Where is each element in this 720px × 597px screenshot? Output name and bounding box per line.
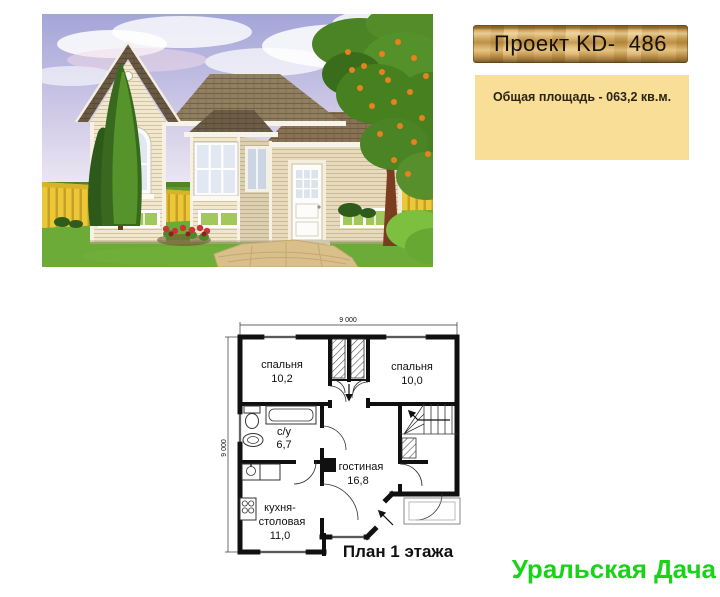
stairs <box>400 404 457 434</box>
house-photo <box>42 14 433 267</box>
closets <box>332 339 416 458</box>
dim-top-label: 9 000 <box>339 317 357 324</box>
kitchen-label-line1: кухня- <box>264 502 296 514</box>
house-illustration <box>42 14 433 267</box>
flower-bed <box>157 225 211 246</box>
kitchen-area: 11,0 <box>270 530 291 542</box>
bedroom1-area: 10,2 <box>271 373 292 385</box>
floor-plan-drawing: 9 000 9 000 <box>220 314 470 566</box>
project-header-plank: Проект KD- 486 <box>473 25 688 63</box>
livingroom-area: 16,8 <box>347 475 368 487</box>
plan-caption: План 1 этажа <box>343 542 454 561</box>
dim-left-label: 9 000 <box>221 439 228 457</box>
bedroom2-label: спальня <box>391 361 433 373</box>
bathroom-area: 6,7 <box>276 439 291 451</box>
bathroom-label: с/у <box>277 426 292 438</box>
brand-watermark: Уральская Дача <box>494 554 716 585</box>
wall-block <box>322 458 336 472</box>
project-title: Проект KD- 486 <box>473 25 688 63</box>
porch <box>404 498 460 524</box>
stairs-arrow <box>409 411 450 420</box>
livingroom-label: гостиная <box>339 461 384 473</box>
total-area-label: Общая площадь - 063,2 кв.м. <box>475 75 689 104</box>
toilet-bowl <box>246 414 259 429</box>
brochure-page: Проект KD- 486 Общая площадь - 063,2 кв.… <box>0 0 720 597</box>
kitchen-label-line2: столовая <box>259 516 306 528</box>
bedroom2-area: 10,0 <box>401 375 422 387</box>
entry-door <box>286 160 330 246</box>
kitchen-counter <box>260 464 280 480</box>
toilet-tank <box>244 406 260 413</box>
bay-window <box>184 110 278 242</box>
bedroom1-label: спальня <box>261 359 303 371</box>
floor-plan: 9 000 9 000 <box>220 314 470 566</box>
area-info-box: Общая площадь - 063,2 кв.м. <box>475 75 689 160</box>
entrance-arrow <box>379 511 393 525</box>
